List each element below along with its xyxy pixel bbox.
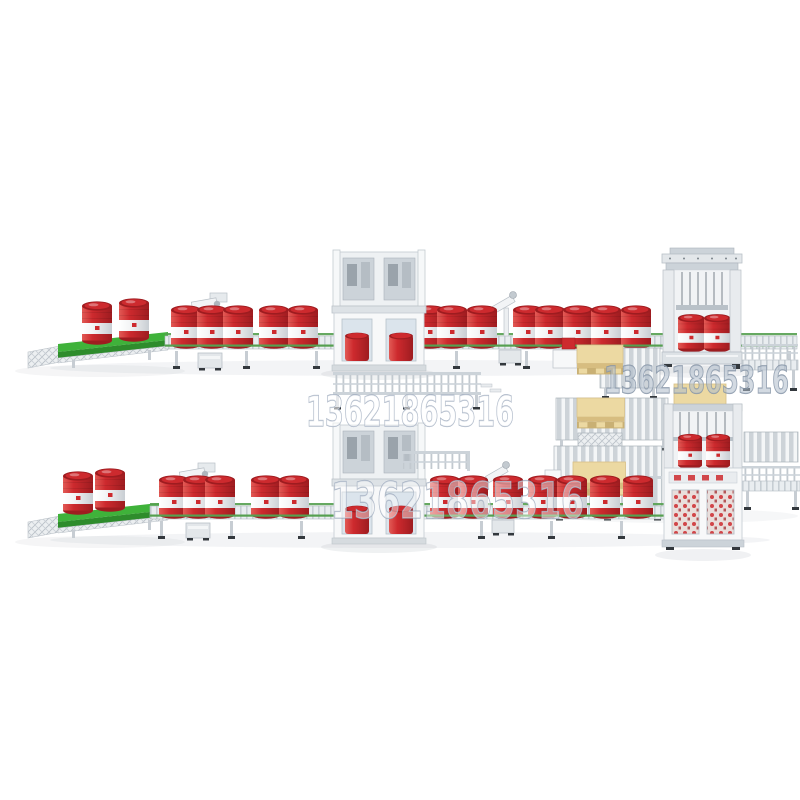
- oil-drum: [678, 434, 702, 469]
- pallet-conveyor: [744, 432, 798, 462]
- drum-filling-line-photo: 13621865316 13621865316 13621865316: [0, 0, 800, 800]
- palletizer: [662, 248, 742, 367]
- filling-machine: [332, 250, 426, 371]
- oil-drum: [590, 475, 620, 518]
- oil-drum: [621, 305, 651, 348]
- oil-drum: [704, 314, 730, 352]
- infeed-ramp: [28, 516, 60, 538]
- inspection-window: [672, 490, 699, 534]
- oil-drum: [82, 301, 112, 344]
- oil-drum: [706, 434, 730, 469]
- oil-drum: [95, 468, 125, 511]
- oil-drum: [223, 305, 253, 348]
- oil-drum: [119, 298, 149, 341]
- inspection-window: [707, 490, 734, 534]
- gripper-bar: [676, 305, 728, 310]
- pallet-dispenser-machine: [662, 384, 744, 550]
- oil-drum: [251, 475, 281, 518]
- oil-drum: [591, 305, 621, 348]
- oil-drum: [197, 305, 227, 348]
- oil-drum: [437, 305, 467, 348]
- oil-drum: [288, 305, 318, 348]
- watermark-phone-number: 13621865316: [306, 387, 514, 436]
- oil-drum: [205, 475, 235, 518]
- control-cabinet: [553, 350, 577, 368]
- oil-drum: [259, 305, 289, 348]
- oil-drum: [63, 471, 93, 514]
- machine-render-canvas: 13621865316 13621865316 13621865316: [0, 0, 800, 800]
- oil-drum: [623, 475, 653, 518]
- discharge-conveyor: [742, 466, 800, 510]
- oil-drum: [279, 475, 309, 518]
- pallet-stack: [577, 398, 625, 428]
- oil-drum: [467, 305, 497, 348]
- oil-drum: [678, 314, 704, 352]
- watermark-phone-number: 13621865316: [331, 472, 584, 530]
- oil-drum: [171, 305, 201, 348]
- infeed-ramp: [28, 346, 60, 368]
- oil-drum: [535, 305, 565, 348]
- platform-railing: [400, 451, 470, 471]
- control-button-box: [562, 338, 575, 349]
- watermark-phone-number: 13621865316: [604, 359, 789, 402]
